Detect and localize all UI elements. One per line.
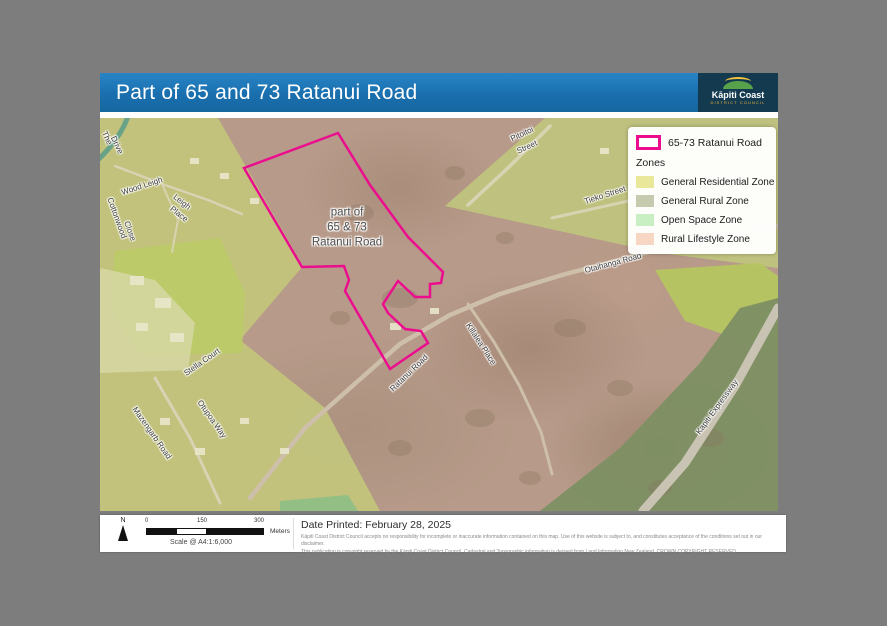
legend-zone-row: Open Space Zone: [636, 214, 768, 226]
disclaimer-text: Kāpiti Coast District Council accepts no…: [301, 534, 779, 556]
legend-zones-title: Zones: [636, 157, 768, 169]
date-printed: Date Printed: February 28, 2025: [301, 519, 451, 531]
legend-zone-row: General Rural Zone: [636, 195, 768, 207]
kapiti-coast-council-logo: Kāpiti Coast DISTRICT COUNCIL: [698, 73, 778, 112]
parcel-label-line2: 65 & 73: [312, 221, 382, 236]
logo-name: Kāpiti Coast: [712, 90, 765, 100]
map-legend: 65-73 Ratanui Road Zones General Residen…: [628, 127, 776, 254]
north-arrow: N: [116, 517, 130, 541]
footer-divider: [293, 518, 294, 549]
killalea-place-road: [468, 304, 552, 474]
aerial-map-view: part of 65 & 73 Ratanui Road TheDriveWoo…: [100, 118, 778, 511]
scale-bar: [146, 528, 264, 535]
parcel-swatch-icon: [636, 135, 661, 150]
scale-tick-0: 0: [145, 518, 148, 524]
north-arrow-icon: [118, 525, 128, 541]
legend-zone-row: Rural Lifestyle Zone: [636, 233, 768, 245]
legend-parcel-label: 65-73 Ratanui Road: [668, 137, 762, 149]
legend-zone-list: General Residential ZoneGeneral Rural Zo…: [636, 176, 768, 245]
zone-color-swatch: [636, 195, 654, 207]
legend-zone-row: General Residential Zone: [636, 176, 768, 188]
parcel-label: part of 65 & 73 Ratanui Road: [312, 206, 382, 251]
logo-hill-icon: [723, 81, 753, 89]
scale-bar-segment: [206, 529, 263, 534]
scale-bar-segment: [147, 529, 177, 534]
scale-tick-150: 150: [197, 518, 207, 524]
scale-caption: Scale @ A4:1:6,000: [170, 539, 232, 546]
zone-color-swatch: [636, 233, 654, 245]
scale-bar-segment: [177, 529, 206, 534]
zone-label: General Rural Zone: [661, 196, 749, 207]
page: { "header": { "title": "Part of 65 and 7…: [0, 0, 887, 626]
disclaimer-line1: Kāpiti Coast District Council accepts no…: [301, 534, 779, 549]
map-footer: N 0 150 300 Meters Scale @ A4:1:6,000 Da…: [100, 515, 786, 552]
scale-unit: Meters: [270, 528, 290, 535]
zone-color-swatch: [636, 176, 654, 188]
parcel-label-line1: part of: [312, 206, 382, 221]
disclaimer-line2: This publication is copyright reserved b…: [301, 549, 779, 556]
parcel-label-line3: Ratanui Road: [312, 235, 382, 250]
zone-label: Rural Lifestyle Zone: [661, 234, 750, 245]
zone-label: General Residential Zone: [661, 177, 774, 188]
legend-parcel-row: 65-73 Ratanui Road: [636, 135, 768, 150]
logo-subtitle: DISTRICT COUNCIL: [710, 100, 765, 105]
page-title: Part of 65 and 73 Ratanui Road: [116, 81, 698, 105]
scale-tick-300: 300: [254, 518, 264, 524]
zone-label: Open Space Zone: [661, 215, 742, 226]
map-title-bar: Part of 65 and 73 Ratanui Road Kāpiti Co…: [100, 73, 778, 112]
zone-color-swatch: [636, 214, 654, 226]
north-label: N: [116, 517, 130, 524]
